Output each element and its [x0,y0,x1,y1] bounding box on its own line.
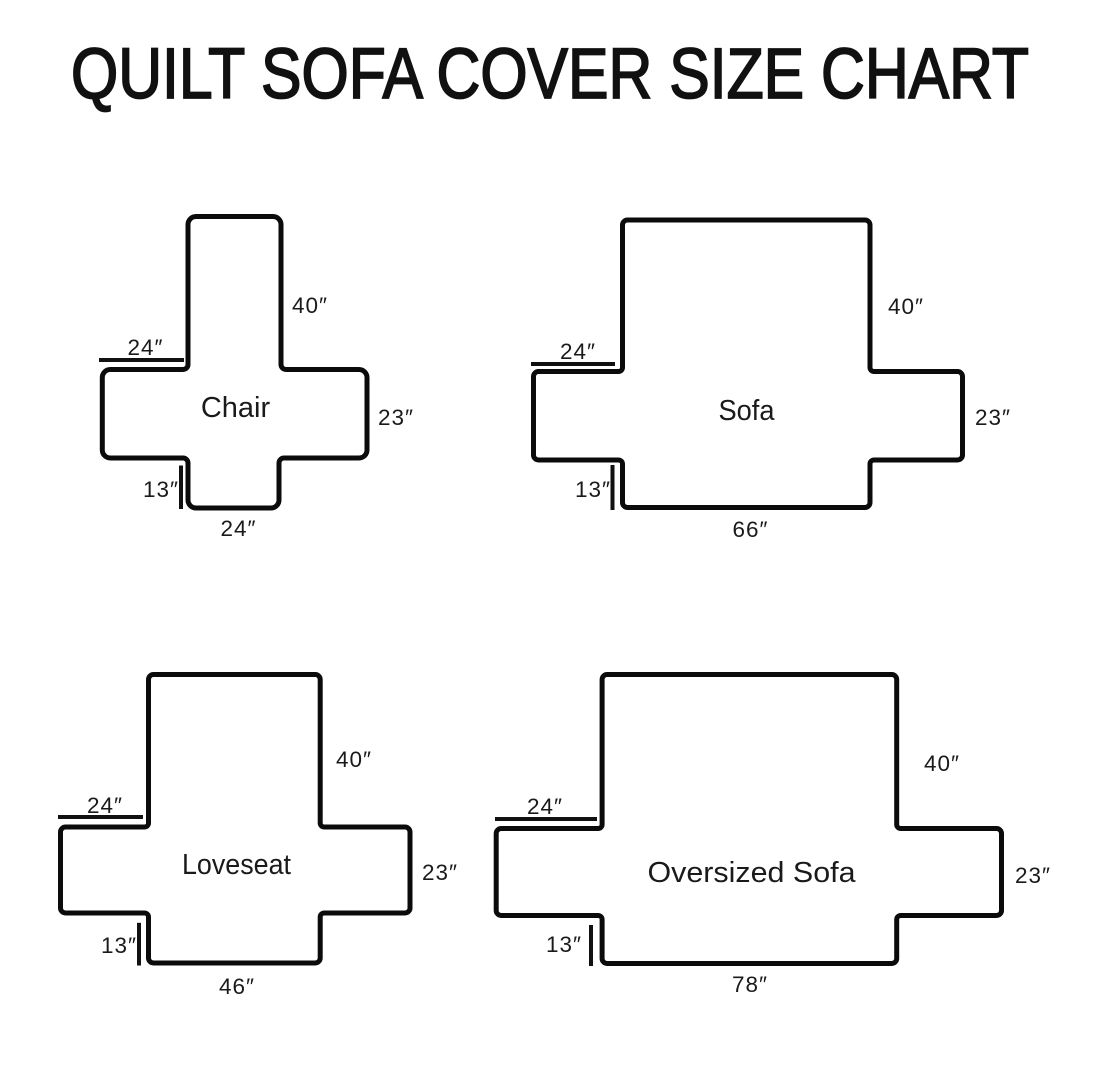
svg-text:78″: 78″ [732,972,768,997]
svg-text:13″: 13″ [546,932,582,957]
svg-text:24″: 24″ [87,793,123,818]
svg-text:13″: 13″ [575,477,611,502]
svg-text:Loveseat: Loveseat [182,849,291,881]
svg-text:40″: 40″ [336,747,372,772]
svg-text:23″: 23″ [422,860,458,885]
svg-text:13″: 13″ [101,933,137,958]
svg-text:QUILT SOFA COVER SIZE CHART: QUILT SOFA COVER SIZE CHART [71,35,1029,114]
svg-text:40″: 40″ [888,294,924,319]
svg-text:23″: 23″ [1015,863,1051,888]
svg-text:Sofa: Sofa [719,395,776,427]
svg-text:24″: 24″ [527,794,563,819]
svg-text:23″: 23″ [378,405,414,430]
svg-text:46″: 46″ [219,974,255,999]
svg-text:23″: 23″ [975,405,1011,430]
svg-text:24″: 24″ [560,339,596,364]
svg-text:66″: 66″ [733,517,769,542]
svg-text:24″: 24″ [128,335,164,360]
svg-text:13″: 13″ [143,477,179,502]
svg-text:24″: 24″ [221,516,257,541]
svg-text:40″: 40″ [924,751,960,776]
svg-text:40″: 40″ [292,293,328,318]
svg-text:Chair: Chair [201,392,271,424]
svg-text:Oversized Sofa: Oversized Sofa [648,857,857,889]
